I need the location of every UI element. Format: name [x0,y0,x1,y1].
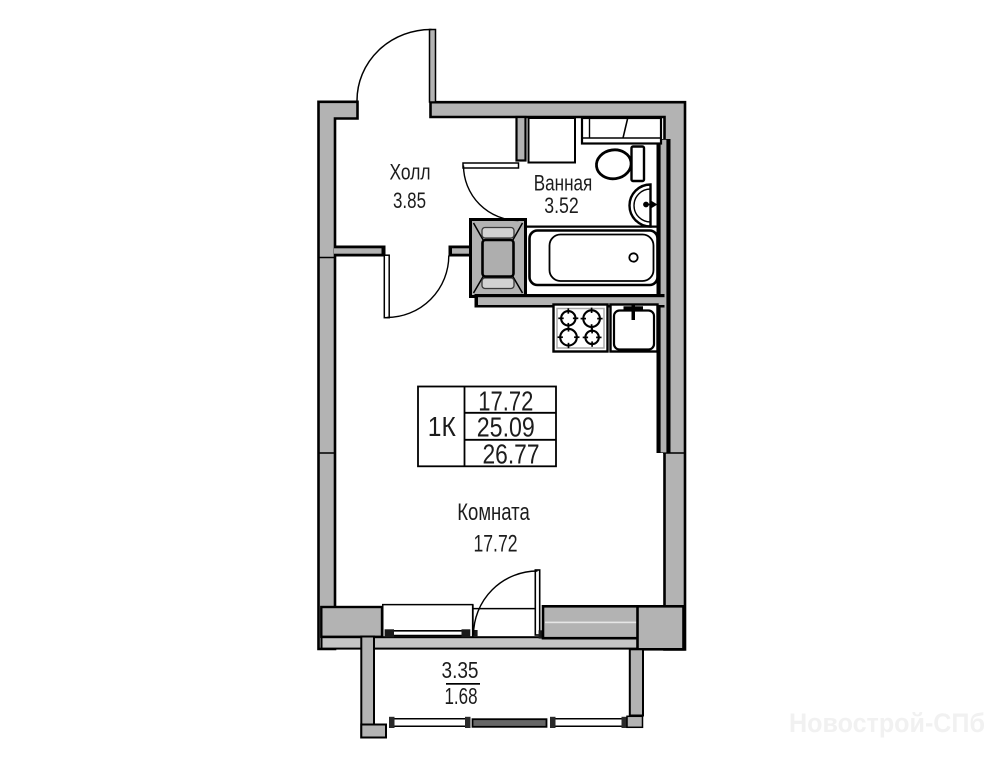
svg-text:3.85: 3.85 [393,188,426,213]
svg-text:3.35: 3.35 [442,657,479,683]
svg-text:Комната: Комната [457,499,530,526]
svg-text:17.72: 17.72 [474,531,518,558]
svg-text:26.77: 26.77 [483,439,540,470]
svg-text:Новострой-СПб: Новострой-СПб [789,708,985,738]
svg-text:Холл: Холл [390,160,431,185]
svg-text:Ванная: Ванная [534,171,593,196]
svg-text:1К: 1К [428,411,457,442]
svg-text:3.52: 3.52 [544,193,579,218]
svg-text:1.68: 1.68 [445,683,478,709]
